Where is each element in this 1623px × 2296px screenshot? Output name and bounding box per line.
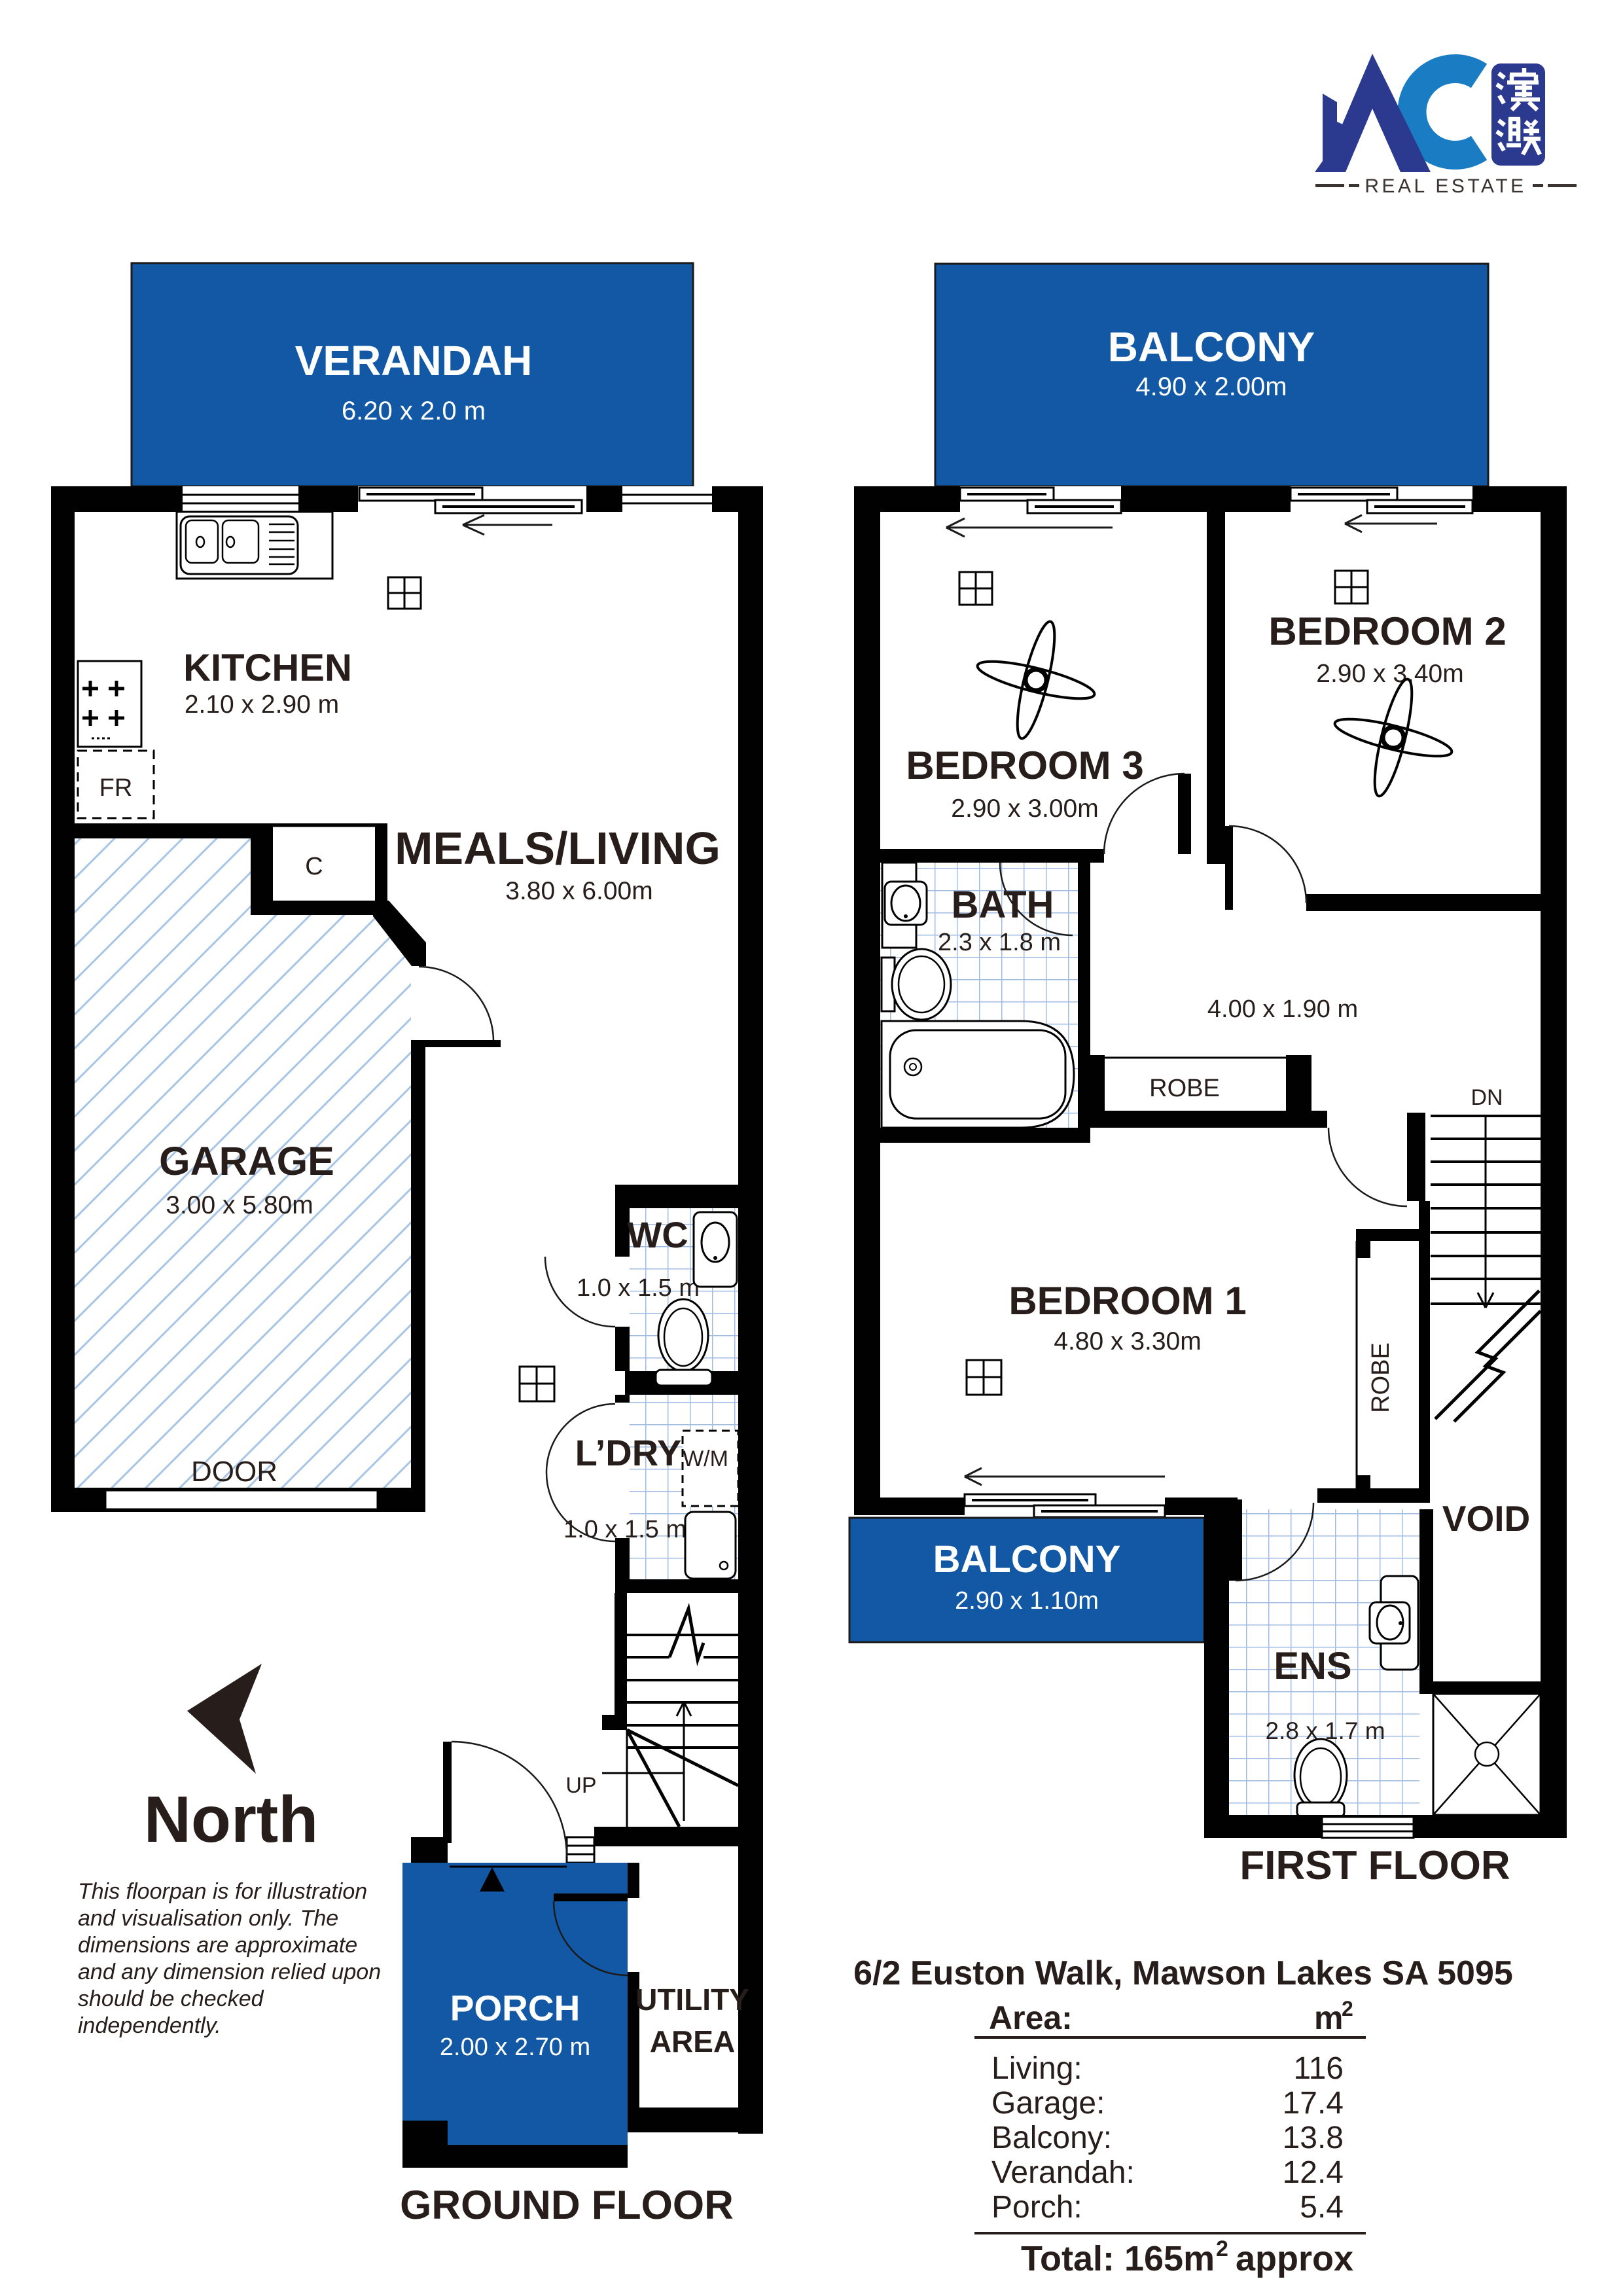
svg-text:FR: FR <box>99 774 133 802</box>
svg-text:3.00 x 5.80m: 3.00 x 5.80m <box>166 1191 313 1219</box>
svg-text:Total: 165m: Total: 165m <box>1021 2239 1215 2278</box>
svg-text:2.90 x 3.00m: 2.90 x 3.00m <box>951 795 1098 823</box>
svg-text:FIRST FLOOR: FIRST FLOOR <box>1240 1843 1510 1888</box>
svg-text:independently.: independently. <box>78 2013 221 2038</box>
svg-text:should be checked: should be checked <box>78 1986 264 2011</box>
svg-text:2.90 x 3.40m: 2.90 x 3.40m <box>1316 660 1463 688</box>
svg-text:1.0 x 1.5 m: 1.0 x 1.5 m <box>563 1516 687 1543</box>
svg-text:GROUND FLOOR: GROUND FLOOR <box>400 2183 734 2228</box>
svg-text:This floorpan is for illustrat: This floorpan is for illustration <box>78 1879 367 1904</box>
svg-text:PORCH: PORCH <box>450 1988 580 2028</box>
svg-text:L’DRY: L’DRY <box>575 1432 682 1473</box>
svg-text:KITCHEN: KITCHEN <box>183 647 352 689</box>
svg-text:MEALS/LIVING: MEALS/LIVING <box>395 823 721 874</box>
svg-text:2: 2 <box>1216 2236 1228 2261</box>
svg-text:12.4: 12.4 <box>1283 2155 1344 2190</box>
svg-text:2.00 x 2.70 m: 2.00 x 2.70 m <box>440 2034 590 2061</box>
svg-text:4.80 x 3.30m: 4.80 x 3.30m <box>1054 1327 1201 1355</box>
svg-text:BALCONY: BALCONY <box>933 1538 1121 1581</box>
svg-text:3.80 x 6.00m: 3.80 x 6.00m <box>505 877 652 905</box>
svg-text:4.00 x 1.90 m: 4.00 x 1.90 m <box>1207 996 1358 1023</box>
svg-text:Area:: Area: <box>989 2000 1073 2036</box>
svg-text:2.90 x 1.10m: 2.90 x 1.10m <box>955 1587 1099 1615</box>
svg-text:17.4: 17.4 <box>1283 2086 1344 2121</box>
svg-text:REAL ESTATE: REAL ESTATE <box>1364 175 1526 197</box>
svg-text:W/M: W/M <box>683 1446 728 1471</box>
svg-text:ROBE: ROBE <box>1149 1075 1220 1102</box>
svg-text:Verandah:: Verandah: <box>991 2155 1135 2190</box>
svg-text:2.10 x 2.90 m: 2.10 x 2.90 m <box>185 691 339 719</box>
svg-text:VOID: VOID <box>1442 1498 1530 1539</box>
svg-text:approx: approx <box>1236 2239 1353 2278</box>
svg-text:BALCONY: BALCONY <box>1108 323 1315 370</box>
svg-text:and visualisation only. The: and visualisation only. The <box>78 1906 338 1931</box>
svg-text:UTILITY: UTILITY <box>635 1982 749 2017</box>
svg-text:BEDROOM 3: BEDROOM 3 <box>906 744 1143 787</box>
svg-text:DOOR: DOOR <box>191 1456 277 1488</box>
svg-text:6.20 x 2.0 m: 6.20 x 2.0 m <box>342 397 486 425</box>
svg-text:BEDROOM 1: BEDROOM 1 <box>1008 1279 1246 1323</box>
svg-text:UP: UP <box>565 1773 596 1798</box>
svg-text:2.3 x 1.8 m: 2.3 x 1.8 m <box>938 929 1061 956</box>
svg-text:116: 116 <box>1293 2051 1344 2086</box>
svg-text:2: 2 <box>1342 1997 1353 2020</box>
svg-text:dimensions are approximate: dimensions are approximate <box>78 1933 357 1958</box>
svg-text:Living:: Living: <box>991 2051 1082 2086</box>
svg-text:Garage:: Garage: <box>991 2086 1105 2121</box>
svg-text:AREA: AREA <box>650 2024 735 2058</box>
svg-text:6/2 Euston Walk, Mawson Lakes: 6/2 Euston Walk, Mawson Lakes SA 5095 <box>853 1954 1513 1992</box>
svg-text:BATH: BATH <box>952 884 1054 926</box>
svg-text:C: C <box>305 853 323 880</box>
svg-text:North: North <box>144 1783 319 1856</box>
svg-text:DN: DN <box>1471 1085 1503 1110</box>
svg-text:4.90 x 2.00m: 4.90 x 2.00m <box>1135 372 1287 401</box>
svg-text:GARAGE: GARAGE <box>159 1139 334 1183</box>
svg-text:5.4: 5.4 <box>1300 2190 1344 2225</box>
svg-text:Balcony:: Balcony: <box>991 2121 1112 2155</box>
svg-text:BEDROOM 2: BEDROOM 2 <box>1268 609 1506 653</box>
svg-text:VERANDAH: VERANDAH <box>295 337 533 384</box>
svg-text:1.0 x 1.5 m: 1.0 x 1.5 m <box>577 1274 700 1302</box>
svg-text:13.8: 13.8 <box>1283 2121 1344 2155</box>
svg-text:and any dimension relied upon: and any dimension relied upon <box>78 1960 381 1984</box>
svg-text:ENS: ENS <box>1274 1645 1351 1687</box>
svg-text:Porch:: Porch: <box>991 2190 1082 2225</box>
svg-text:m: m <box>1314 2000 1343 2036</box>
svg-text:WC: WC <box>627 1214 688 1255</box>
svg-text:ROBE: ROBE <box>1367 1342 1395 1413</box>
